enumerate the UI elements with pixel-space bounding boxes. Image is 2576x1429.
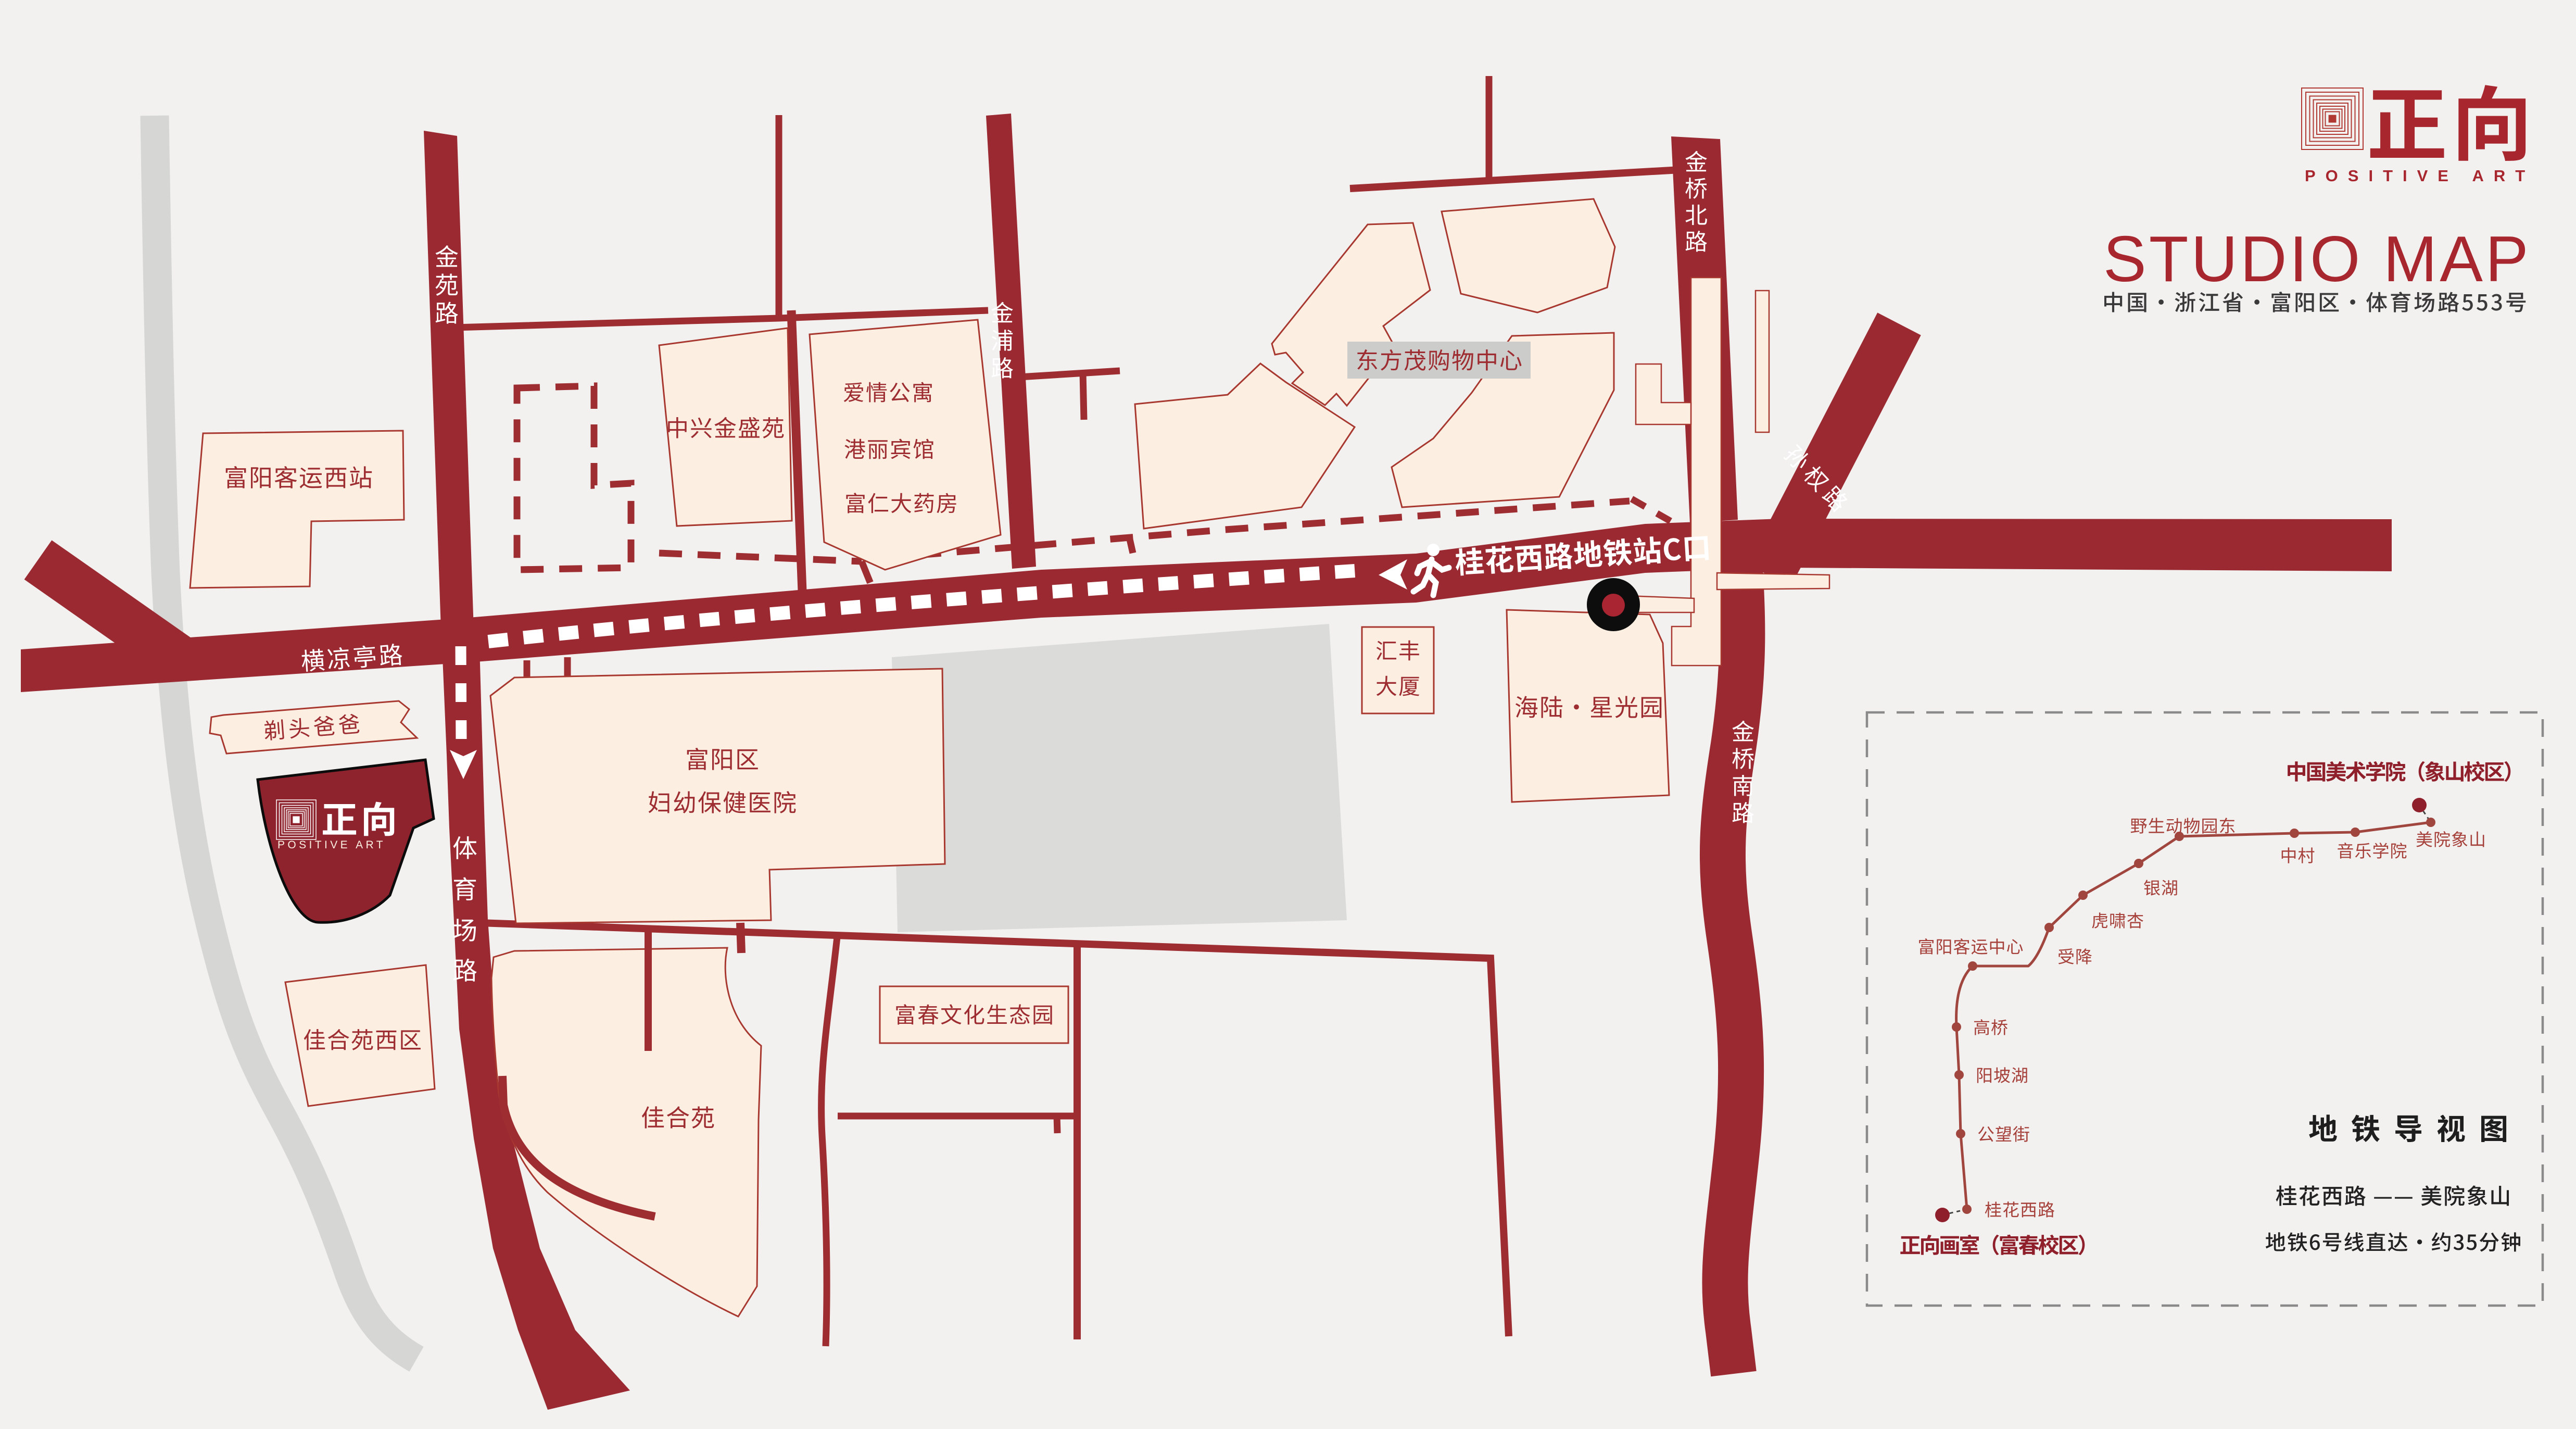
svg-text:STUDIO MAP: STUDIO MAP xyxy=(2103,223,2531,295)
svg-text:POSITIVE ART: POSITIVE ART xyxy=(2305,167,2535,185)
svg-text:POSITIVE ART: POSITIVE ART xyxy=(277,839,386,851)
